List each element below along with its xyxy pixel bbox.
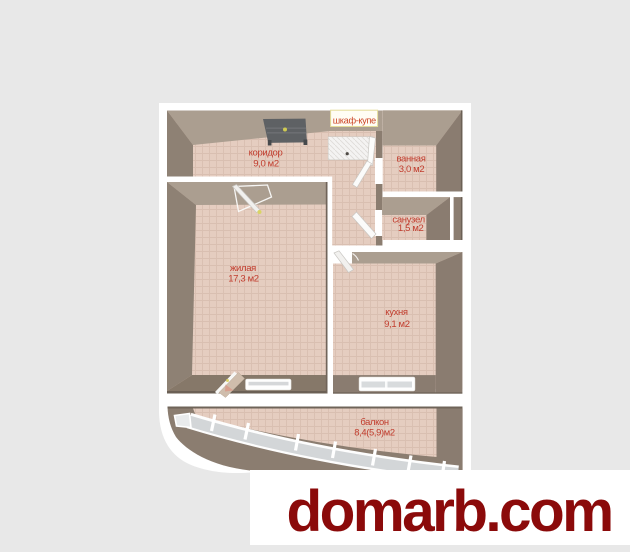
svg-text:domarb.com: domarb.com [286,479,611,544]
svg-text:3,0 м2: 3,0 м2 [399,164,425,175]
svg-text:17,3 м2: 17,3 м2 [228,273,259,284]
svg-text:9,0 м2: 9,0 м2 [253,158,279,169]
svg-text:балкон: балкон [360,416,389,427]
svg-text:9,1 м2: 9,1 м2 [384,319,410,330]
svg-text:кухня: кухня [385,307,408,318]
svg-text:ванная: ванная [396,153,425,164]
svg-text:коридор: коридор [249,148,283,159]
svg-text:8,4(5,9)м2: 8,4(5,9)м2 [354,426,395,437]
svg-text:шкаф-купе: шкаф-купе [333,115,376,125]
svg-text:1,5 м2: 1,5 м2 [398,223,424,234]
svg-text:жилая: жилая [230,263,256,274]
